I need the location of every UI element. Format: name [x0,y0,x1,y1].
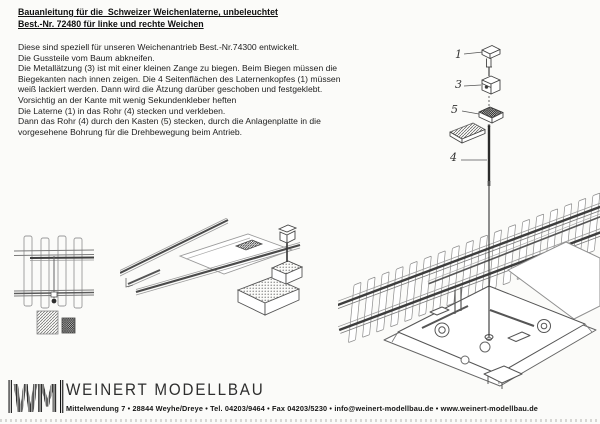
track-top-view-drawing [10,232,110,338]
page-title: Bauanleitung für die Schweizer Weichenla… [18,7,278,30]
title-line-1: Bauanleitung für die Schweizer Weichenla… [18,7,278,19]
instruction-text: Diese sind speziell für unseren Weichena… [18,42,418,137]
company-name: WEINERT MODELLBAU [66,381,265,400]
scan-edge-artifact [0,419,600,422]
part-label-5: 5 [451,104,458,115]
wm-logo-text: WM [13,378,57,417]
title-line-2: Best.-Nr. 72480 für linke und rechte Wei… [18,19,278,31]
instruction-sheet-page: Bauanleitung für die Schweizer Weichenla… [0,0,600,424]
part-label-4: 4 [450,152,457,163]
part-label-3: 3 [455,79,462,90]
part-label-1: 1 [455,49,462,60]
wm-logo: WM [8,377,64,417]
track-closeup-drawing [120,218,316,330]
company-address: Mittelwendung 7 • 28844 Weyhe/Dreye • Te… [66,404,538,413]
